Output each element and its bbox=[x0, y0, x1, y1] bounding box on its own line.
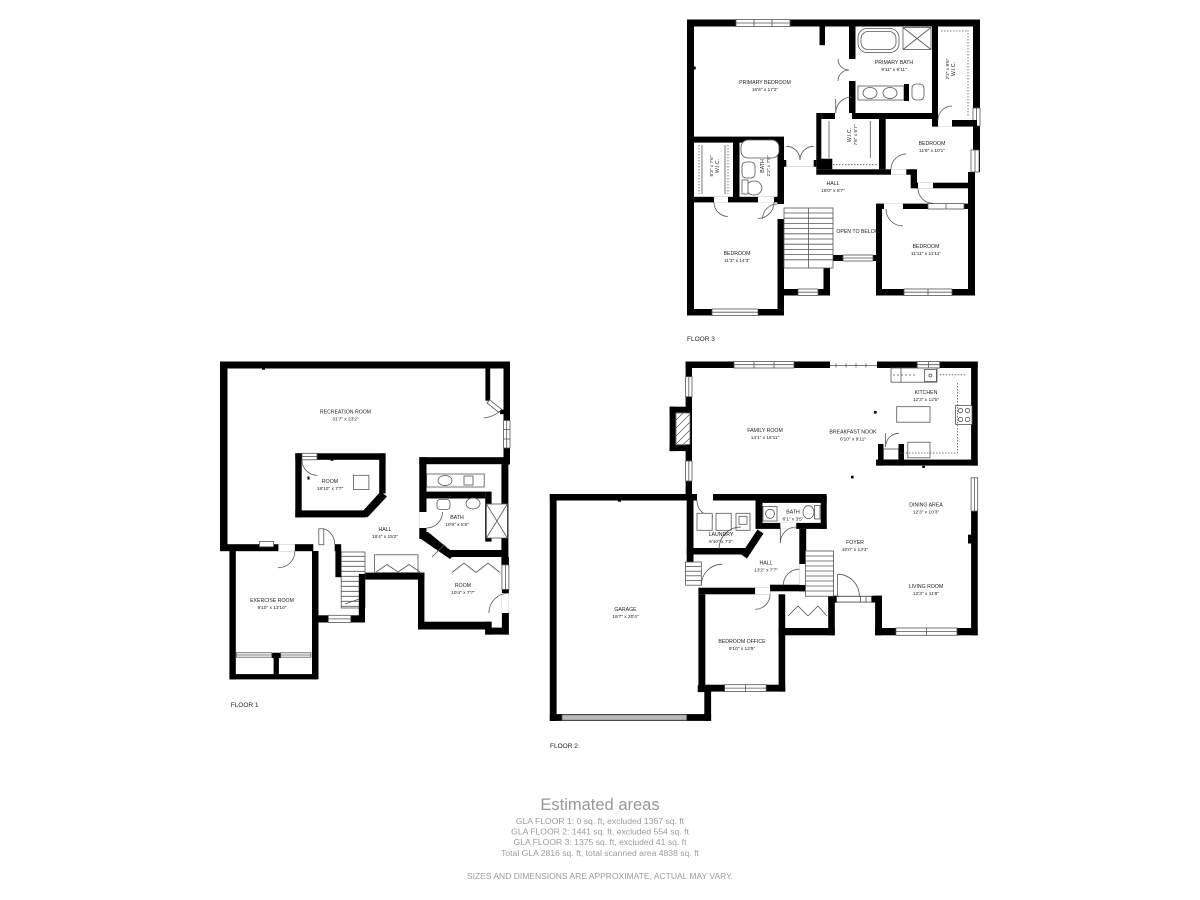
svg-text:FOYER: FOYER bbox=[846, 540, 864, 546]
svg-text:W.I.C.: W.I.C. bbox=[951, 62, 957, 76]
svg-text:ROOM: ROOM bbox=[455, 583, 471, 589]
svg-text:GLA FLOOR 2: 1441 sq. ft, excl: GLA FLOOR 2: 1441 sq. ft, excluded 554 s… bbox=[511, 827, 689, 837]
svg-text:BATH: BATH bbox=[786, 510, 800, 516]
svg-text:12'3" x 12'5": 12'3" x 12'5" bbox=[913, 397, 940, 403]
svg-text:10'9" x 5'5": 10'9" x 5'5" bbox=[445, 522, 469, 528]
svg-text:HALL: HALL bbox=[379, 527, 392, 533]
svg-text:LAUNDRY: LAUNDRY bbox=[709, 532, 734, 538]
svg-text:6'10" x 9'11": 6'10" x 9'11" bbox=[840, 437, 866, 443]
svg-text:12'3" x 11'8": 12'3" x 11'8" bbox=[913, 591, 939, 597]
svg-text:18'10" x 7'7": 18'10" x 7'7" bbox=[317, 486, 344, 492]
svg-text:BEDROOM: BEDROOM bbox=[919, 141, 946, 147]
svg-text:5'3" x 7'6": 5'3" x 7'6" bbox=[709, 155, 715, 176]
svg-text:BEDROOM: BEDROOM bbox=[913, 244, 940, 250]
svg-text:18'0" x 8'7": 18'0" x 8'7" bbox=[821, 188, 845, 194]
svg-text:11'8" x 10'1": 11'8" x 10'1" bbox=[919, 148, 945, 154]
svg-text:KITCHEN: KITCHEN bbox=[915, 390, 938, 396]
svg-text:9'10" x 12'5": 9'10" x 12'5" bbox=[729, 646, 756, 652]
svg-text:BATH: BATH bbox=[450, 515, 464, 521]
svg-text:PRIMARY BATH: PRIMARY BATH bbox=[875, 60, 914, 66]
svg-text:10'0" x 13'3": 10'0" x 13'3" bbox=[842, 547, 869, 553]
svg-text:W.I.C.: W.I.C. bbox=[847, 128, 853, 142]
svg-text:Total GLA 2816 sq. ft, total s: Total GLA 2816 sq. ft, total scanned are… bbox=[501, 848, 699, 858]
svg-text:10'4" x 7'7": 10'4" x 7'7" bbox=[451, 590, 475, 596]
svg-text:BREAKFAST NOOK: BREAKFAST NOOK bbox=[829, 430, 877, 436]
svg-text:11'11" x 11'11": 11'11" x 11'11" bbox=[911, 251, 942, 257]
svg-text:OPEN TO BELOW: OPEN TO BELOW bbox=[836, 229, 879, 235]
svg-text:19'7" x 20'4": 19'7" x 20'4" bbox=[612, 614, 639, 620]
svg-text:LIVING ROOM: LIVING ROOM bbox=[909, 584, 944, 590]
svg-text:ROOM: ROOM bbox=[322, 479, 338, 485]
svg-text:GLA FLOOR 1: 0 sq. ft, exclude: GLA FLOOR 1: 0 sq. ft, excluded 1367 sq.… bbox=[516, 816, 685, 826]
svg-text:18'4" x 15'2": 18'4" x 15'2" bbox=[372, 534, 399, 540]
svg-text:BEDROOM OFFICE: BEDROOM OFFICE bbox=[718, 639, 766, 645]
svg-text:BEDROOM: BEDROOM bbox=[724, 251, 751, 257]
svg-text:FLOOR 2: FLOOR 2 bbox=[550, 743, 578, 750]
svg-text:7'8" x 6'7": 7'8" x 6'7" bbox=[853, 124, 859, 145]
svg-text:Estimated areas: Estimated areas bbox=[540, 796, 659, 814]
svg-text:PRIMARY BEDROOM: PRIMARY BEDROOM bbox=[739, 80, 791, 86]
svg-text:HALL: HALL bbox=[827, 181, 840, 187]
svg-text:2'2" x 7'9": 2'2" x 7'9" bbox=[766, 155, 772, 176]
svg-text:EXERCISE ROOM: EXERCISE ROOM bbox=[250, 598, 294, 604]
svg-text:W.I.C.: W.I.C. bbox=[715, 159, 721, 173]
svg-text:SIZES AND DIMENSIONS ARE APPRO: SIZES AND DIMENSIONS ARE APPROXIMATE, AC… bbox=[467, 871, 733, 881]
svg-text:6'10" x 7'2": 6'10" x 7'2" bbox=[709, 539, 733, 545]
svg-text:RECREATION ROOM: RECREATION ROOM bbox=[320, 410, 371, 416]
svg-text:9'10" x 13'10": 9'10" x 13'10" bbox=[258, 605, 287, 611]
svg-text:2'2" x 9'6": 2'2" x 9'6" bbox=[945, 58, 951, 79]
svg-text:14'1" x 16'11": 14'1" x 16'11" bbox=[751, 435, 780, 441]
svg-text:BATH: BATH bbox=[760, 159, 766, 173]
svg-text:6'1" x 3'5": 6'1" x 3'5" bbox=[783, 517, 804, 523]
svg-text:FLOOR 3: FLOOR 3 bbox=[687, 336, 715, 343]
svg-text:GARAGE: GARAGE bbox=[614, 607, 637, 613]
svg-text:11'3" x 14'3": 11'3" x 14'3" bbox=[724, 258, 750, 264]
svg-text:16'6" x 17'2": 16'6" x 17'2" bbox=[752, 87, 779, 93]
svg-text:DINING AREA: DINING AREA bbox=[909, 503, 943, 509]
svg-text:12'3" x 10'3": 12'3" x 10'3" bbox=[913, 510, 940, 516]
svg-text:13'2" x 7'7": 13'2" x 7'7" bbox=[754, 568, 778, 574]
svg-text:FLOOR 1: FLOOR 1 bbox=[231, 702, 259, 709]
svg-text:GLA FLOOR 3: 1375 sq. ft, excl: GLA FLOOR 3: 1375 sq. ft, excluded 41 sq… bbox=[514, 837, 688, 847]
svg-text:9'11" x 9'11": 9'11" x 9'11" bbox=[881, 67, 907, 73]
svg-text:FAMILY ROOM: FAMILY ROOM bbox=[747, 428, 783, 434]
svg-text:31'7" x 23'2": 31'7" x 23'2" bbox=[332, 417, 359, 423]
svg-text:HALL: HALL bbox=[760, 561, 773, 567]
